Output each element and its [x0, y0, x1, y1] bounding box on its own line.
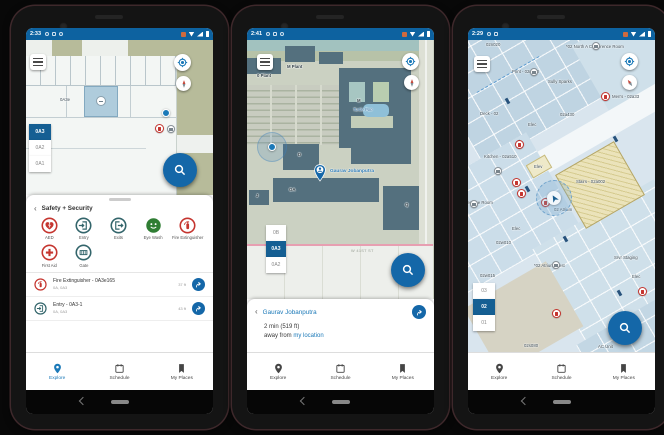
alarm-icon	[266, 32, 271, 37]
sync-icon	[59, 32, 64, 37]
tab-explore[interactable]: Explore	[468, 353, 530, 390]
map-pin-icon	[273, 363, 284, 374]
fire-extinguisher-icon	[179, 217, 196, 234]
room-label: 0A3e	[60, 97, 70, 102]
location-dot	[268, 143, 276, 151]
building-label: J	[256, 193, 258, 198]
navigation-arrow-icon	[548, 192, 560, 204]
pin-label[interactable]: Gaurav Jobanputra	[330, 169, 374, 174]
phone-1: 2:33	[11, 6, 228, 429]
directions-arrow-icon	[194, 304, 203, 313]
room-label: Kitchen - 02a510	[484, 154, 517, 159]
room-label: Elec	[632, 274, 640, 279]
tab-schedule[interactable]: Schedule	[530, 353, 592, 390]
directions-arrow-icon	[194, 280, 203, 289]
bookmark-icon	[618, 363, 629, 374]
menu-button[interactable]	[257, 54, 273, 70]
building-label: Q	[405, 202, 408, 207]
category-entry[interactable]: Entry	[67, 217, 102, 241]
building-label: D	[298, 152, 301, 157]
sync-icon	[280, 32, 285, 37]
calendar-icon	[335, 363, 346, 374]
bottom-sheet: ‹ Safety + Security AED Entry Exits Eye …	[26, 195, 213, 352]
map-canvas[interactable]: 0A3e 0A3 0A2 0A1	[26, 40, 213, 195]
menu-button[interactable]	[474, 56, 490, 72]
room-label: Men's - 02a33	[612, 94, 639, 99]
result-row-fire-extinguisher[interactable]: Fire Extinguisher - 0A3e165 0A, 0A3 37 f…	[26, 273, 213, 297]
elevator-icon[interactable]	[96, 96, 106, 106]
compass-button[interactable]	[176, 76, 191, 91]
android-back-button[interactable]	[300, 397, 308, 405]
category-eye-wash[interactable]: Eye Wash	[136, 217, 171, 241]
room-label: Srvr Staging	[614, 255, 638, 260]
room-label: Elec	[528, 122, 536, 127]
notification-thumb-icon	[181, 32, 186, 37]
screenshot-icon	[52, 32, 57, 37]
menu-button[interactable]	[30, 54, 46, 70]
map-pin-icon	[494, 363, 505, 374]
category-aed[interactable]: AED	[32, 217, 67, 241]
tab-my-places[interactable]: My Places	[151, 353, 213, 390]
phone-2: 2:41	[232, 6, 449, 429]
floor-chip-03[interactable]: 03	[473, 283, 495, 299]
locate-button[interactable]	[402, 53, 419, 70]
calendar-icon	[114, 363, 125, 374]
building-label: M	[357, 98, 361, 103]
fire-extinguisher-map-icon[interactable]	[638, 287, 647, 296]
screenshot-icon	[273, 32, 278, 37]
my-location-link[interactable]: my location	[293, 333, 323, 339]
directions-button[interactable]	[192, 278, 205, 291]
battery-icon	[648, 31, 652, 38]
tab-explore[interactable]: Explore	[247, 353, 309, 390]
android-back-button[interactable]	[79, 397, 87, 405]
room-label: AC Unit	[598, 344, 613, 349]
sheet-title[interactable]: Gaurav Jobanputra	[263, 309, 317, 316]
android-back-button[interactable]	[521, 397, 529, 405]
status-time: 2:41	[251, 31, 262, 37]
directions-button[interactable]	[192, 302, 205, 315]
tab-explore[interactable]: Explore	[26, 353, 88, 390]
room-label: 02n020	[486, 42, 500, 47]
alarm-icon	[487, 32, 492, 37]
building-label: OA	[289, 187, 295, 192]
status-bar: 2:29	[468, 28, 655, 40]
floor-chip-02[interactable]: 02	[473, 299, 495, 315]
building-label: M Plant	[287, 64, 302, 69]
floor-chip-01[interactable]: 01	[473, 315, 495, 331]
wifi-icon	[410, 32, 416, 37]
result-row-entry[interactable]: Entry - 0A3-1 0A, 0A3 43 ft	[26, 297, 213, 321]
entry-icon	[75, 217, 92, 234]
category-exits[interactable]: Exits	[101, 217, 136, 241]
floor-chip-0A1[interactable]: 0A1	[29, 156, 51, 172]
mens-room-icon[interactable]	[601, 92, 610, 101]
room-label: *02 Atrium West	[534, 263, 565, 268]
sheet-title: Safety + Security	[42, 205, 93, 212]
bottom-nav: Explore Schedule My Places	[468, 352, 655, 390]
bottom-nav: Explore Schedule My Places	[26, 352, 213, 390]
fire-extinguisher-map-icon[interactable]	[155, 124, 164, 133]
fire-extinguisher-map-icon[interactable]	[517, 189, 526, 198]
signal-icon	[639, 32, 645, 37]
floor-chip-0A2[interactable]: 0A2	[266, 257, 286, 273]
battery-icon	[427, 31, 431, 38]
eye-wash-icon	[145, 217, 162, 234]
street-label: W 41ST ST	[351, 248, 374, 253]
category-gate[interactable]: Gate	[67, 244, 102, 268]
notification-thumb-icon	[623, 32, 628, 37]
status-time: 2:29	[472, 31, 483, 37]
map-canvas[interactable]: 02n020 *02 North A Conference Room Print…	[468, 40, 655, 352]
exits-icon	[110, 217, 127, 234]
location-heading-marker	[547, 191, 561, 205]
room-label: Stairs - 02a002	[576, 179, 605, 184]
calendar-icon	[556, 363, 567, 374]
room-label: Sully Sparks	[548, 79, 572, 84]
wifi-icon	[631, 32, 637, 37]
floor-selector: 0B 0A3 0A2	[266, 225, 286, 273]
screen-1: 2:33	[26, 28, 213, 414]
bottom-nav: Explore Schedule My Places	[247, 352, 434, 390]
route-origin-line: away from my location	[264, 333, 434, 339]
kitchen-icon[interactable]	[494, 167, 502, 175]
search-fab[interactable]	[608, 311, 642, 345]
screen-2: 2:41	[247, 28, 434, 414]
back-icon[interactable]: ‹	[34, 205, 37, 213]
entry-icon	[34, 302, 47, 315]
locate-button[interactable]	[621, 53, 638, 70]
directions-button[interactable]	[412, 305, 426, 319]
android-nav-bar	[247, 390, 434, 414]
search-fab[interactable]	[391, 253, 425, 287]
map-pin-icon	[52, 363, 63, 374]
floor-chip-0B[interactable]: 0B	[266, 225, 286, 241]
room-label: 02a430	[560, 112, 574, 117]
fire-extinguisher-icon	[34, 278, 47, 291]
status-time: 2:33	[30, 31, 41, 37]
aed-icon	[41, 217, 58, 234]
gate-icon	[75, 244, 92, 261]
tab-my-places[interactable]: My Places	[372, 353, 434, 390]
bookmark-icon	[176, 363, 187, 374]
status-bar: 2:41	[247, 28, 434, 40]
result-subtitle: 0A, 0A3	[53, 285, 172, 290]
category-fire-extinguisher[interactable]: Fire Extinguisher	[170, 217, 205, 241]
screenshot-icon	[494, 32, 499, 37]
first-aid-icon	[41, 244, 58, 261]
room-label: Elev	[534, 164, 542, 169]
route-time-distance: 2 min (519 ft)	[264, 324, 434, 330]
speaker-slot	[316, 15, 344, 19]
bottom-sheet: ‹ Gaurav Jobanputra 2 min (519 ft) away …	[247, 299, 434, 352]
category-first-aid[interactable]: First Aid	[32, 244, 67, 268]
result-title: Fire Extinguisher - 0A3e165	[53, 278, 172, 284]
speaker-slot	[537, 15, 565, 19]
atrium-west-icon[interactable]	[552, 261, 560, 269]
alarm-icon	[45, 32, 50, 37]
facility-map-icon[interactable]	[167, 125, 175, 133]
wifi-icon	[189, 32, 195, 37]
floor-selector: 0A3 0A2 0A1	[29, 124, 51, 172]
sheet-drag-handle[interactable]	[109, 198, 131, 201]
first-aid-map-icon[interactable]	[515, 140, 524, 149]
camera-icon[interactable]	[592, 42, 600, 50]
conference-room-icon[interactable]	[470, 200, 478, 208]
water-label: Turtle Pon	[353, 107, 373, 112]
android-home-button[interactable]	[553, 400, 571, 404]
locate-button[interactable]	[174, 54, 191, 71]
room-label: 02s080	[524, 343, 538, 348]
floor-chip-0A3[interactable]: 0A3	[29, 124, 51, 140]
floor-chip-0A2[interactable]: 0A2	[29, 140, 51, 156]
compass-button[interactable]	[404, 75, 419, 90]
result-distance: 37 ft	[178, 282, 186, 287]
android-home-button[interactable]	[111, 400, 129, 404]
tab-schedule[interactable]: Schedule	[309, 353, 371, 390]
back-icon[interactable]: ‹	[255, 308, 258, 316]
room-label: 02w010	[496, 240, 511, 245]
tab-my-places[interactable]: My Places	[593, 353, 655, 390]
fire-extinguisher-map-icon[interactable]	[512, 178, 521, 187]
room-label: 02w015	[480, 273, 495, 278]
notification-thumb-icon	[402, 32, 407, 37]
battery-icon	[206, 31, 210, 38]
status-bar: 2:33	[26, 28, 213, 40]
result-subtitle: 0A, 0A3	[53, 309, 172, 314]
android-nav-bar	[468, 390, 655, 414]
person-pin-marker[interactable]	[313, 164, 327, 182]
android-nav-bar	[26, 390, 213, 414]
result-title: Entry - 0A3-1	[53, 302, 172, 308]
printer-icon[interactable]	[530, 68, 538, 76]
phone-3: 2:29	[453, 6, 664, 429]
screen-3: 2:29	[468, 28, 655, 414]
room-label: Elec	[512, 226, 520, 231]
map-canvas[interactable]: M Plant 0 Plant M Turtle Pon OA J D Q W …	[247, 40, 434, 299]
bookmark-icon	[397, 363, 408, 374]
tab-schedule[interactable]: Schedule	[88, 353, 150, 390]
speaker-slot	[95, 15, 123, 19]
signal-icon	[197, 32, 203, 37]
result-distance: 43 ft	[178, 306, 186, 311]
building-label: 0 Plant	[257, 73, 271, 78]
fire-extinguisher-map-icon[interactable]	[552, 309, 561, 318]
android-home-button[interactable]	[332, 400, 350, 404]
location-dot	[162, 109, 170, 117]
search-fab[interactable]	[163, 153, 197, 187]
floor-chip-0A3[interactable]: 0A3	[266, 241, 286, 257]
directions-arrow-icon	[415, 308, 424, 317]
signal-icon	[418, 32, 424, 37]
floor-selector: 03 02 01	[473, 283, 495, 331]
category-grid: AED Entry Exits Eye Wash Fire Extinguish…	[26, 215, 213, 272]
compass-button[interactable]	[622, 75, 637, 90]
room-label: Deck - 02	[480, 111, 498, 116]
